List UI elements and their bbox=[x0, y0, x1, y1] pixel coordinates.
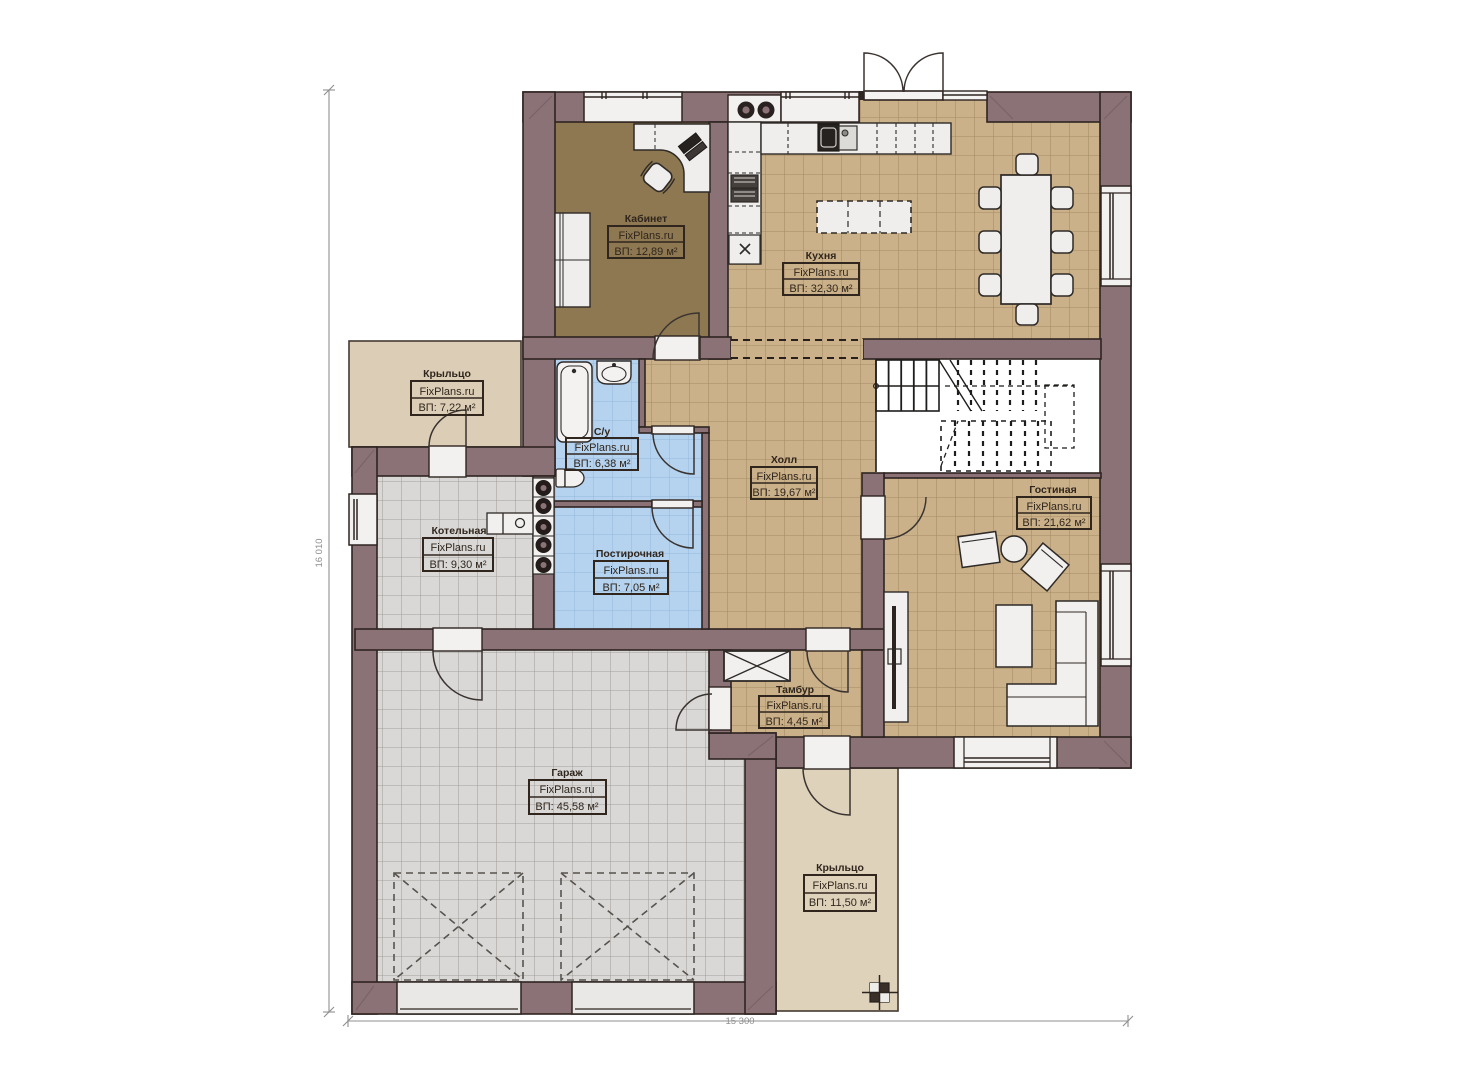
svg-text:С/у: С/у bbox=[594, 426, 611, 438]
svg-text:ВП: 7,05 м²: ВП: 7,05 м² bbox=[602, 582, 659, 594]
svg-text:ВП: 19,67 м²: ВП: 19,67 м² bbox=[752, 487, 816, 499]
svg-text:16 010: 16 010 bbox=[314, 538, 325, 567]
svg-text:Кабинет: Кабинет bbox=[625, 213, 668, 225]
svg-text:ВП: 32,30 м²: ВП: 32,30 м² bbox=[789, 283, 853, 295]
svg-text:ВП: 11,50 м²: ВП: 11,50 м² bbox=[809, 897, 872, 909]
svg-text:15 300: 15 300 bbox=[725, 1016, 754, 1027]
svg-text:ВП: 21,62 м²: ВП: 21,62 м² bbox=[1022, 517, 1086, 529]
svg-text:FixPlans.ru: FixPlans.ru bbox=[574, 442, 629, 454]
svg-text:FixPlans.ru: FixPlans.ru bbox=[603, 565, 658, 577]
svg-text:Постирочная: Постирочная bbox=[596, 548, 664, 560]
svg-text:FixPlans.ru: FixPlans.ru bbox=[1026, 501, 1081, 513]
svg-text:Крыльцо: Крыльцо bbox=[816, 862, 864, 874]
svg-text:FixPlans.ru: FixPlans.ru bbox=[539, 784, 594, 796]
svg-text:FixPlans.ru: FixPlans.ru bbox=[430, 542, 485, 554]
svg-text:FixPlans.ru: FixPlans.ru bbox=[618, 230, 673, 242]
svg-text:FixPlans.ru: FixPlans.ru bbox=[793, 267, 848, 279]
svg-text:ВП: 45,58 м²: ВП: 45,58 м² bbox=[535, 801, 599, 813]
svg-text:Гараж: Гараж bbox=[551, 767, 583, 779]
svg-text:Холл: Холл bbox=[771, 454, 797, 466]
svg-text:FixPlans.ru: FixPlans.ru bbox=[812, 880, 867, 892]
svg-text:Крыльцо: Крыльцо bbox=[423, 368, 471, 380]
svg-text:ВП: 7,22 м²: ВП: 7,22 м² bbox=[418, 402, 475, 414]
svg-text:ВП: 9,30 м²: ВП: 9,30 м² bbox=[429, 559, 486, 571]
svg-text:FixPlans.ru: FixPlans.ru bbox=[766, 700, 821, 712]
svg-text:ВП: 12,89 м²: ВП: 12,89 м² bbox=[614, 246, 678, 258]
svg-text:Гостиная: Гостиная bbox=[1029, 484, 1076, 496]
svg-text:FixPlans.ru: FixPlans.ru bbox=[756, 471, 811, 483]
svg-text:FixPlans.ru: FixPlans.ru bbox=[419, 386, 474, 398]
svg-text:Котельная: Котельная bbox=[432, 525, 487, 537]
svg-text:ВП: 4,45 м²: ВП: 4,45 м² bbox=[765, 716, 822, 728]
svg-text:Кухня: Кухня bbox=[806, 250, 837, 262]
svg-text:Тамбур: Тамбур bbox=[776, 684, 814, 696]
svg-text:ВП: 6,38 м²: ВП: 6,38 м² bbox=[573, 458, 630, 470]
